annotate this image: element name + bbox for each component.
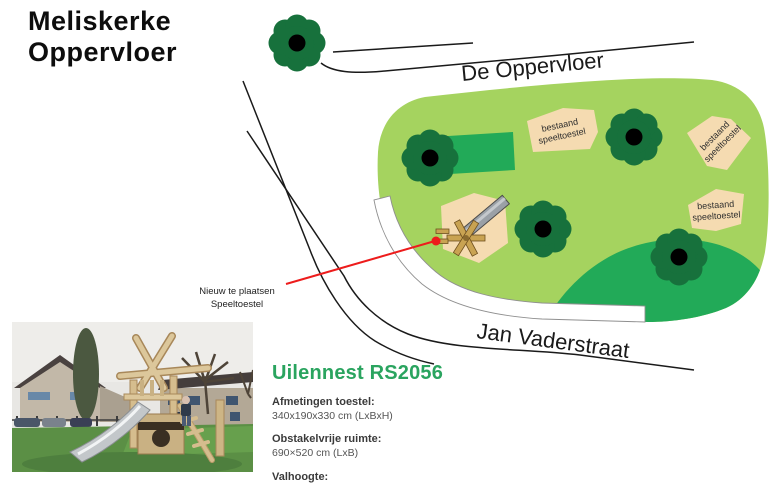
playground-plan-page: Meliskerke Oppervloer xyxy=(0,0,781,484)
annotation-new-equipment: Nieuw te plaatsen Speeltoestel xyxy=(166,285,308,312)
spec-label: Obstakelvrije ruimte: xyxy=(272,433,502,447)
product-name: Uilennest RS2056 xyxy=(272,362,502,385)
spec-value: 690×520 cm (LxB) xyxy=(272,447,502,461)
spec-value: 340x190x330 cm (LxBxH) xyxy=(272,410,502,424)
tree-icon xyxy=(651,229,708,286)
spec-dimensions: Afmetingen toestel: 340x190x330 cm (LxBx… xyxy=(272,396,502,423)
annotation-line1: Nieuw te plaatsen xyxy=(166,285,308,298)
equipment-photo xyxy=(12,322,253,472)
photo-child-figure xyxy=(181,396,191,426)
spec-label: Valhoogte: xyxy=(272,471,502,484)
tree-icon xyxy=(515,201,572,258)
street-label-bottom: Jan Vaderstraat xyxy=(475,318,631,363)
spec-label: Afmetingen toestel: xyxy=(272,396,502,410)
road-line-top-short xyxy=(333,43,473,52)
spec-fall-height: Valhoogte: 100 cm xyxy=(272,471,502,484)
spec-clearance: Obstakelvrije ruimte: 690×520 cm (LxB) xyxy=(272,433,502,460)
tree-icon xyxy=(606,109,663,166)
product-info: Uilennest RS2056 Afmetingen toestel: 340… xyxy=(272,362,502,484)
tree-icon xyxy=(269,15,326,72)
street-label-top: De Oppervloer xyxy=(460,47,605,86)
pointer-dot-icon xyxy=(432,237,441,246)
annotation-line2: Speeltoestel xyxy=(166,298,308,311)
tree-icon xyxy=(402,130,459,187)
